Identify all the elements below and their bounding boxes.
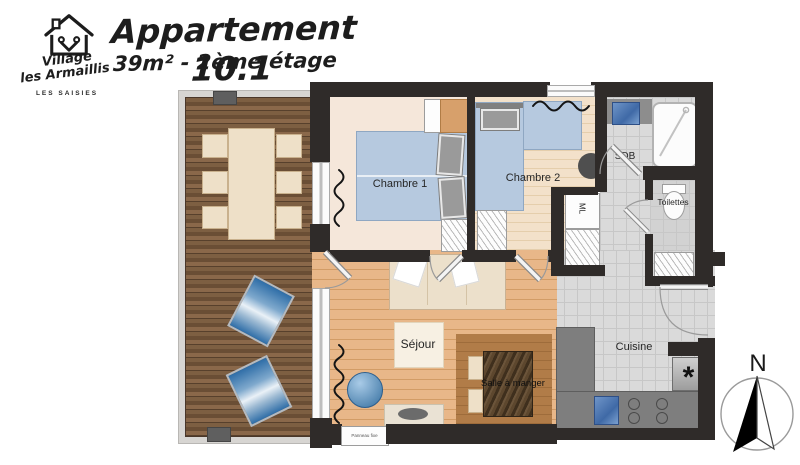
door-balcony: [325, 252, 350, 288]
radiator-chambre2: [533, 102, 589, 111]
door-chambre1: [430, 256, 462, 280]
compass-icon: [721, 376, 793, 452]
door-chambre2: [516, 256, 548, 280]
shower-detail: [660, 107, 689, 156]
radiator-chambre1: [335, 170, 344, 226]
floorplan-page: Village les Armaillis LES SAISIES Appart…: [0, 0, 800, 465]
door-entry: [660, 287, 708, 335]
door-toilettes: [625, 200, 648, 232]
door-sdb: [600, 146, 640, 174]
plan-annotations: [0, 0, 800, 465]
radiator-sejour: [335, 345, 344, 423]
